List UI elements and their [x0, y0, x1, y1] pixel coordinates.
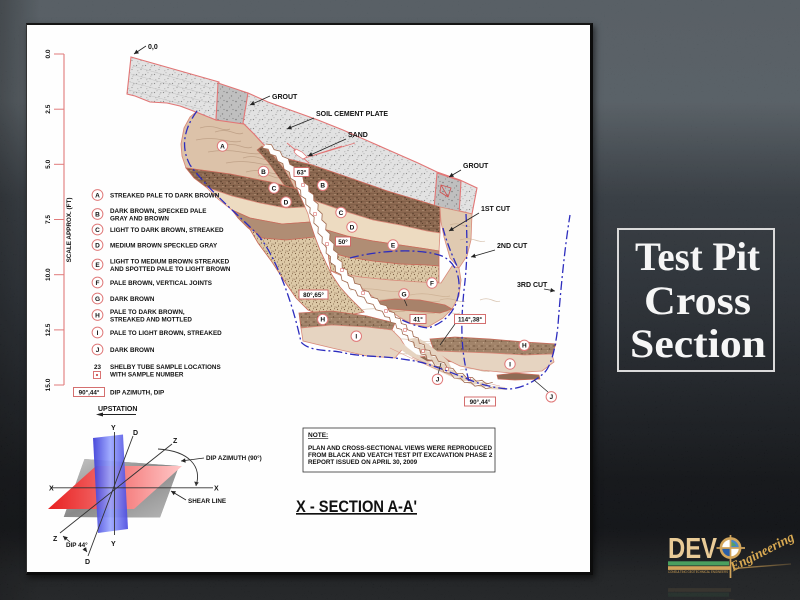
svg-text:G: G: [95, 296, 100, 303]
svg-text:Z: Z: [173, 438, 178, 445]
svg-text:STREAKED PALE TO DARK BROWN: STREAKED PALE TO DARK BROWN: [110, 192, 220, 199]
svg-text:F: F: [96, 280, 100, 287]
svg-text:STREAKED AND MOTTLED: STREAKED AND MOTTLED: [110, 316, 192, 323]
svg-text:41°: 41°: [413, 315, 423, 323]
svg-text:A: A: [220, 143, 225, 150]
svg-text:C: C: [339, 210, 344, 217]
svg-text:1ST CUT: 1ST CUT: [481, 206, 511, 213]
svg-text:J: J: [96, 347, 100, 354]
svg-text:A: A: [95, 192, 100, 199]
svg-text:10.0: 10.0: [45, 268, 52, 281]
svg-text:Z: Z: [53, 536, 58, 543]
svg-text:5.0: 5.0: [45, 159, 52, 168]
svg-text:DIP AZIMUTH (90°): DIP AZIMUTH (90°): [206, 454, 262, 462]
svg-text:3RD CUT: 3RD CUT: [517, 282, 548, 289]
svg-text:23: 23: [94, 364, 102, 371]
svg-text:90°,44°: 90°,44°: [79, 388, 100, 396]
svg-text:63°: 63°: [297, 168, 307, 176]
svg-text:J: J: [436, 377, 440, 384]
svg-text:PALE TO DARK BROWN,: PALE TO DARK BROWN,: [110, 309, 185, 316]
svg-text:C: C: [95, 227, 100, 234]
svg-text:LIGHT TO DARK BROWN, STREAKED: LIGHT TO DARK BROWN, STREAKED: [110, 227, 224, 234]
svg-text:LIGHT TO MEDIUM BROWN STREAKED: LIGHT TO MEDIUM BROWN STREAKED: [110, 258, 230, 265]
svg-text:GROUT: GROUT: [272, 94, 298, 101]
svg-text:SHELBY TUBE SAMPLE LOCATIONS: SHELBY TUBE SAMPLE LOCATIONS: [110, 364, 221, 371]
svg-text:15.0: 15.0: [45, 378, 52, 391]
svg-text:SCALE APPROX. (FT): SCALE APPROX. (FT): [66, 198, 73, 263]
svg-text:I: I: [355, 334, 357, 341]
svg-text:MEDIUM BROWN SPECKLED GRAY: MEDIUM BROWN SPECKLED GRAY: [110, 242, 218, 249]
svg-text:I: I: [509, 361, 511, 368]
svg-text:D: D: [95, 242, 100, 249]
svg-text:B: B: [261, 169, 266, 176]
svg-text:NOTE:: NOTE:: [308, 432, 328, 439]
svg-text:CONSULTING GEOTECHNICAL ENGINE: CONSULTING GEOTECHNICAL ENGINEERS: [668, 570, 728, 574]
svg-text:Y: Y: [111, 541, 116, 548]
svg-text:2.5: 2.5: [45, 104, 52, 113]
svg-text:12.5: 12.5: [45, 323, 52, 336]
svg-text:GROUT: GROUT: [463, 163, 489, 170]
svg-text:X - SECTION A-A': X - SECTION A-A': [296, 498, 417, 516]
svg-text:D: D: [350, 224, 355, 231]
svg-text:UPSTATION: UPSTATION: [98, 406, 137, 413]
svg-text:SOIL CEMENT PLATE: SOIL CEMENT PLATE: [316, 111, 388, 118]
svg-text:PALE BROWN, VERTICAL JOINTS: PALE BROWN, VERTICAL JOINTS: [110, 280, 212, 287]
svg-text:AND SPOTTED PALE TO LIGHT BROW: AND SPOTTED PALE TO LIGHT BROWN: [110, 266, 231, 273]
svg-text:D: D: [133, 430, 138, 437]
svg-text:50°: 50°: [338, 238, 348, 246]
svg-text:I: I: [97, 330, 99, 337]
svg-text:0.0: 0.0: [45, 49, 52, 58]
svg-text:90°,44°: 90°,44°: [470, 398, 491, 406]
svg-text:GRAY AND BROWN: GRAY AND BROWN: [110, 215, 169, 222]
svg-text:G: G: [401, 291, 406, 298]
svg-text:DARK BROWN: DARK BROWN: [110, 296, 155, 303]
svg-text:SHEAR LINE: SHEAR LINE: [188, 498, 226, 505]
svg-text:F: F: [430, 280, 434, 287]
svg-text:E: E: [391, 242, 396, 249]
svg-text:B: B: [320, 183, 325, 190]
svg-text:DARK BROWN, SPECKED PALE: DARK BROWN, SPECKED PALE: [110, 208, 206, 215]
svg-text:DARK BROWN: DARK BROWN: [110, 347, 155, 354]
svg-text:H: H: [320, 317, 325, 324]
svg-text:H: H: [522, 343, 527, 350]
svg-text:80°,65°: 80°,65°: [303, 291, 324, 299]
svg-text:DIP 44°: DIP 44°: [66, 541, 88, 549]
svg-text:REPORT ISSUED ON APRIL 30, 200: REPORT ISSUED ON APRIL 30, 2009: [308, 459, 418, 466]
svg-text:SAND: SAND: [348, 132, 368, 139]
svg-text:114°,38°: 114°,38°: [458, 315, 482, 323]
svg-text:B: B: [95, 211, 100, 218]
svg-text:D: D: [284, 199, 289, 206]
svg-text:DIP AZIMUTH, DIP: DIP AZIMUTH, DIP: [110, 390, 164, 397]
svg-text:H: H: [95, 312, 100, 319]
svg-text:PALE TO LIGHT BROWN, STREAKED: PALE TO LIGHT BROWN, STREAKED: [110, 330, 222, 337]
svg-text:X: X: [49, 486, 54, 493]
svg-text:E: E: [95, 262, 100, 269]
svg-text:Y: Y: [111, 425, 116, 432]
svg-text:C: C: [272, 185, 277, 192]
svg-text:DEV: DEV: [668, 533, 718, 565]
svg-text:J: J: [549, 394, 553, 401]
svg-text:WITH SAMPLE NUMBER: WITH SAMPLE NUMBER: [110, 372, 184, 379]
svg-text:FROM BLACK AND VEATCH TEST PIT: FROM BLACK AND VEATCH TEST PIT EXCAVATIO…: [308, 452, 493, 459]
svg-text:PLAN AND CROSS-SECTIONAL VIEWS: PLAN AND CROSS-SECTIONAL VIEWS WERE REPR…: [308, 445, 492, 452]
svg-text:D: D: [85, 559, 90, 566]
svg-text:7.5: 7.5: [45, 215, 52, 224]
svg-text:X: X: [214, 486, 219, 493]
svg-text:2ND CUT: 2ND CUT: [497, 243, 528, 250]
svg-text:0,0: 0,0: [148, 44, 158, 51]
